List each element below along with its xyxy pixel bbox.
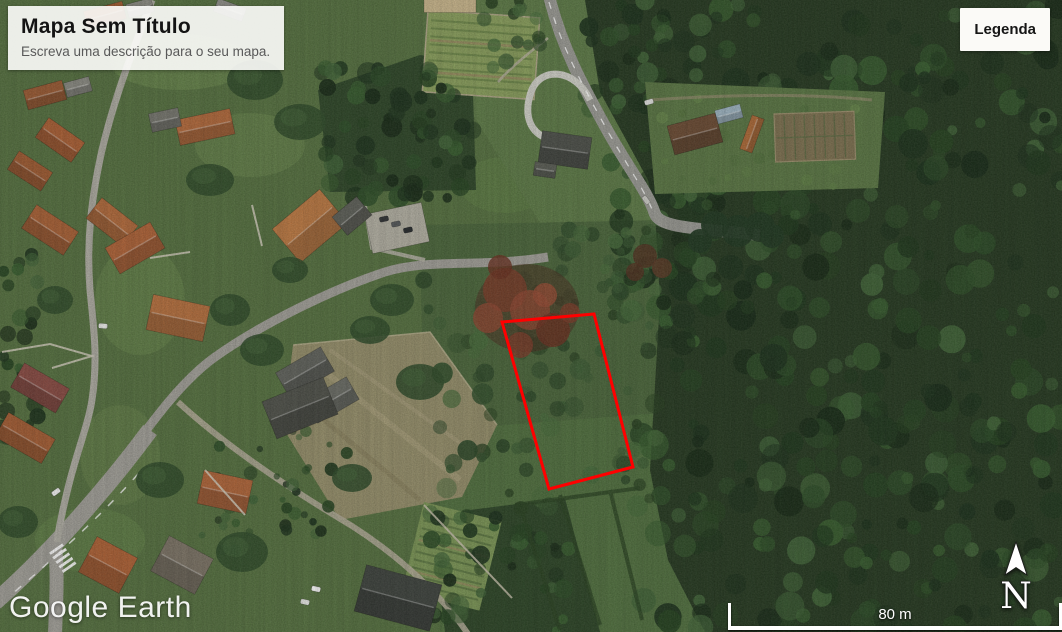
google-earth-logo: Google Earth [9,591,192,625]
north-arrow: N [996,540,1036,614]
map-title: Mapa Sem Título [21,15,270,39]
legend-button[interactable]: Legenda [960,8,1050,51]
satellite-imagery[interactable] [0,0,1062,632]
grain-light [0,0,1062,632]
scale-bar-label: 80 m [878,606,911,623]
google-earth-map-view: Mapa Sem Título Escreva uma descrição pa… [0,0,1062,632]
north-arrow-needle [1005,542,1027,575]
map-subtitle: Escreva uma descrição para o seu mapa. [21,44,270,59]
map-title-card: Mapa Sem Título Escreva uma descrição pa… [8,6,284,70]
north-label: N [1000,576,1032,614]
